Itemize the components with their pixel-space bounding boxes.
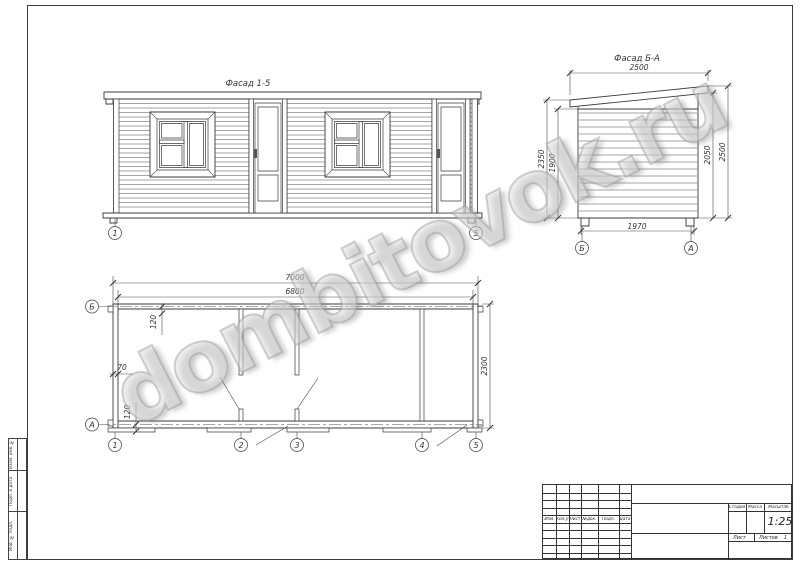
door-leaf <box>220 377 239 409</box>
svg-text:1970: 1970 <box>627 222 646 231</box>
corner-pad <box>108 306 113 312</box>
axis-5: 5 <box>473 229 478 238</box>
scale-label: Масштаб <box>764 505 793 510</box>
dim-depth: 2300 <box>480 301 494 431</box>
svg-text:2350: 2350 <box>537 149 546 168</box>
grid-line <box>543 523 631 524</box>
grid-line <box>543 508 631 509</box>
axis-4: 4 <box>419 441 424 450</box>
floor-plan: 7000 6800 120 <box>85 262 505 462</box>
axis-b: Б <box>89 303 95 312</box>
skid-foot <box>686 218 694 226</box>
drawing-sheet: { "page": { "watermark": "dombitovok.ru"… <box>0 0 800 567</box>
grid-line <box>543 545 631 546</box>
svg-text:120: 120 <box>149 315 158 330</box>
stamp-label: Инв. № подл. <box>9 512 17 559</box>
front-axis-marks: 1 5 <box>109 218 483 240</box>
grid-line <box>754 533 755 541</box>
axis-2: 2 <box>238 441 243 450</box>
scale-value: 1:25 <box>767 515 793 528</box>
rev-col-podp: Подп. <box>598 517 619 522</box>
shed-roof <box>570 86 708 107</box>
stamp-label: Взам. инв. № <box>9 439 17 470</box>
axis-3: 3 <box>294 441 299 450</box>
dim-left-outer: 2350 <box>537 97 578 221</box>
svg-text:70: 70 <box>117 363 127 372</box>
rev-col-izm: Изм. <box>543 517 556 522</box>
foundation-pad <box>383 428 431 432</box>
door-leaf <box>297 378 318 409</box>
axis-a: А <box>687 244 693 253</box>
svg-text:2500: 2500 <box>718 142 727 161</box>
axis-5: 5 <box>473 441 478 450</box>
stamp-label: Подп. и дата <box>9 471 17 511</box>
skid-foot <box>110 218 117 223</box>
axis-1: 1 <box>112 441 117 450</box>
stage-label: Стадия <box>728 505 746 510</box>
grid-line <box>631 485 632 560</box>
front-elevation-title: Фасад 1-5 <box>226 79 271 89</box>
axis-a: А <box>88 421 94 430</box>
corner-pad <box>108 420 113 426</box>
grid-line <box>543 538 631 539</box>
rev-col-koluch: Кол.уч <box>556 517 569 522</box>
svg-text:120: 120 <box>123 405 132 420</box>
svg-text:2300: 2300 <box>480 356 489 375</box>
door-leaf <box>256 426 288 445</box>
foundation-pad <box>207 428 251 432</box>
skid-foot <box>468 218 475 223</box>
foundation-pad <box>467 428 482 432</box>
window-1 <box>150 112 215 177</box>
sheet-label: Лист <box>733 535 746 541</box>
door-handle <box>437 149 440 158</box>
door-handle <box>254 149 257 158</box>
stamp-vzam-inv: Взам. инв. № <box>8 438 27 471</box>
rev-col-list: Лист <box>569 517 581 522</box>
front-elevation: Фасад 1-5 <box>95 76 490 248</box>
grid-line <box>728 541 793 542</box>
svg-text:1900: 1900 <box>548 153 557 172</box>
window-2 <box>325 112 390 177</box>
side-building <box>570 86 708 226</box>
svg-text:2500: 2500 <box>629 63 648 72</box>
stamp-podp-data: Подп. и дата <box>8 470 27 512</box>
corner-pad <box>478 420 483 426</box>
stamp-inv-podl: Инв. № подл. <box>8 511 27 560</box>
svg-text:6800: 6800 <box>285 287 304 296</box>
dim-left-inner: 1900 <box>548 106 578 221</box>
sheets-label: Листов <box>759 535 778 541</box>
corner-pad <box>478 306 483 312</box>
mass-label: Масса <box>746 505 764 510</box>
door-1 <box>249 99 287 213</box>
rev-col-ndok: №док. <box>581 517 598 522</box>
skid-foot <box>581 218 589 226</box>
dim-bottom: 1970 <box>578 222 697 235</box>
grid-line <box>543 553 631 554</box>
side-elevation: Фасад Б-А 2500 2350 1900 2050 2500 1970 <box>535 45 750 260</box>
rev-col-data: Дата <box>619 517 631 522</box>
svg-text:2050: 2050 <box>703 145 712 164</box>
axis-1: 1 <box>112 229 117 238</box>
axis-b: Б <box>579 244 585 253</box>
foundation-pad <box>108 428 155 432</box>
foundation-pad <box>287 428 329 432</box>
title-block: Изм. Кол.уч Лист №док. Подп. Дата Стадия… <box>542 484 792 559</box>
grid-line <box>543 530 631 531</box>
door-2 <box>432 99 470 213</box>
grid-line <box>543 493 631 494</box>
grid-line <box>543 500 631 501</box>
grid-line <box>728 511 793 512</box>
svg-text:7000: 7000 <box>285 273 304 282</box>
sheets-value: 1 <box>784 535 787 541</box>
